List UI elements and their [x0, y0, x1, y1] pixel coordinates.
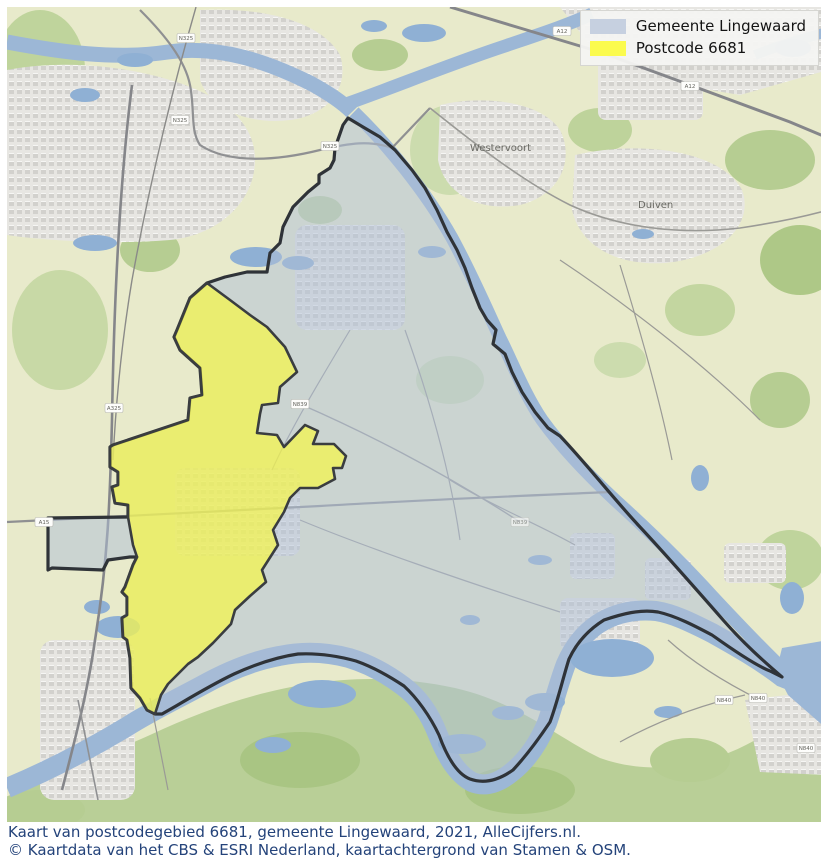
caption-line-2: © Kaartdata van het CBS & ESRI Nederland… — [8, 841, 828, 859]
map-canvas: Westervoort Duiven N325 N325 N325 A325 A… — [0, 0, 828, 861]
road-shield: N840 — [751, 696, 766, 702]
map-legend: Gemeente Lingewaard Postcode 6681 — [580, 10, 819, 66]
road-shield: N325 — [179, 36, 194, 42]
legend-item-gemeente: Gemeente Lingewaard — [590, 18, 806, 35]
road-shield: A15 — [39, 520, 50, 526]
road-shield: N325 — [173, 118, 188, 124]
road-shield: A325 — [107, 406, 122, 412]
map-caption: Kaart van postcodegebied 6681, gemeente … — [0, 822, 828, 861]
town-label-westervoort: Westervoort — [470, 143, 531, 154]
legend-label-gemeente: Gemeente Lingewaard — [636, 18, 806, 35]
road-shield: A12 — [685, 84, 696, 90]
road-shield: N839 — [293, 402, 308, 408]
road-shield: N839 — [513, 520, 528, 526]
legend-item-postcode: Postcode 6681 — [590, 40, 806, 57]
map-figure: Westervoort Duiven N325 N325 N325 A325 A… — [0, 0, 828, 861]
legend-swatch-gemeente — [590, 19, 626, 34]
road-shield: N325 — [323, 144, 338, 150]
legend-swatch-postcode — [590, 41, 626, 56]
town-label-duiven: Duiven — [638, 200, 673, 211]
road-shield: A12 — [557, 29, 568, 35]
legend-label-postcode: Postcode 6681 — [636, 40, 747, 57]
caption-line-1: Kaart van postcodegebied 6681, gemeente … — [8, 823, 828, 841]
road-shield: N840 — [717, 698, 732, 704]
road-shield: N840 — [799, 746, 814, 752]
